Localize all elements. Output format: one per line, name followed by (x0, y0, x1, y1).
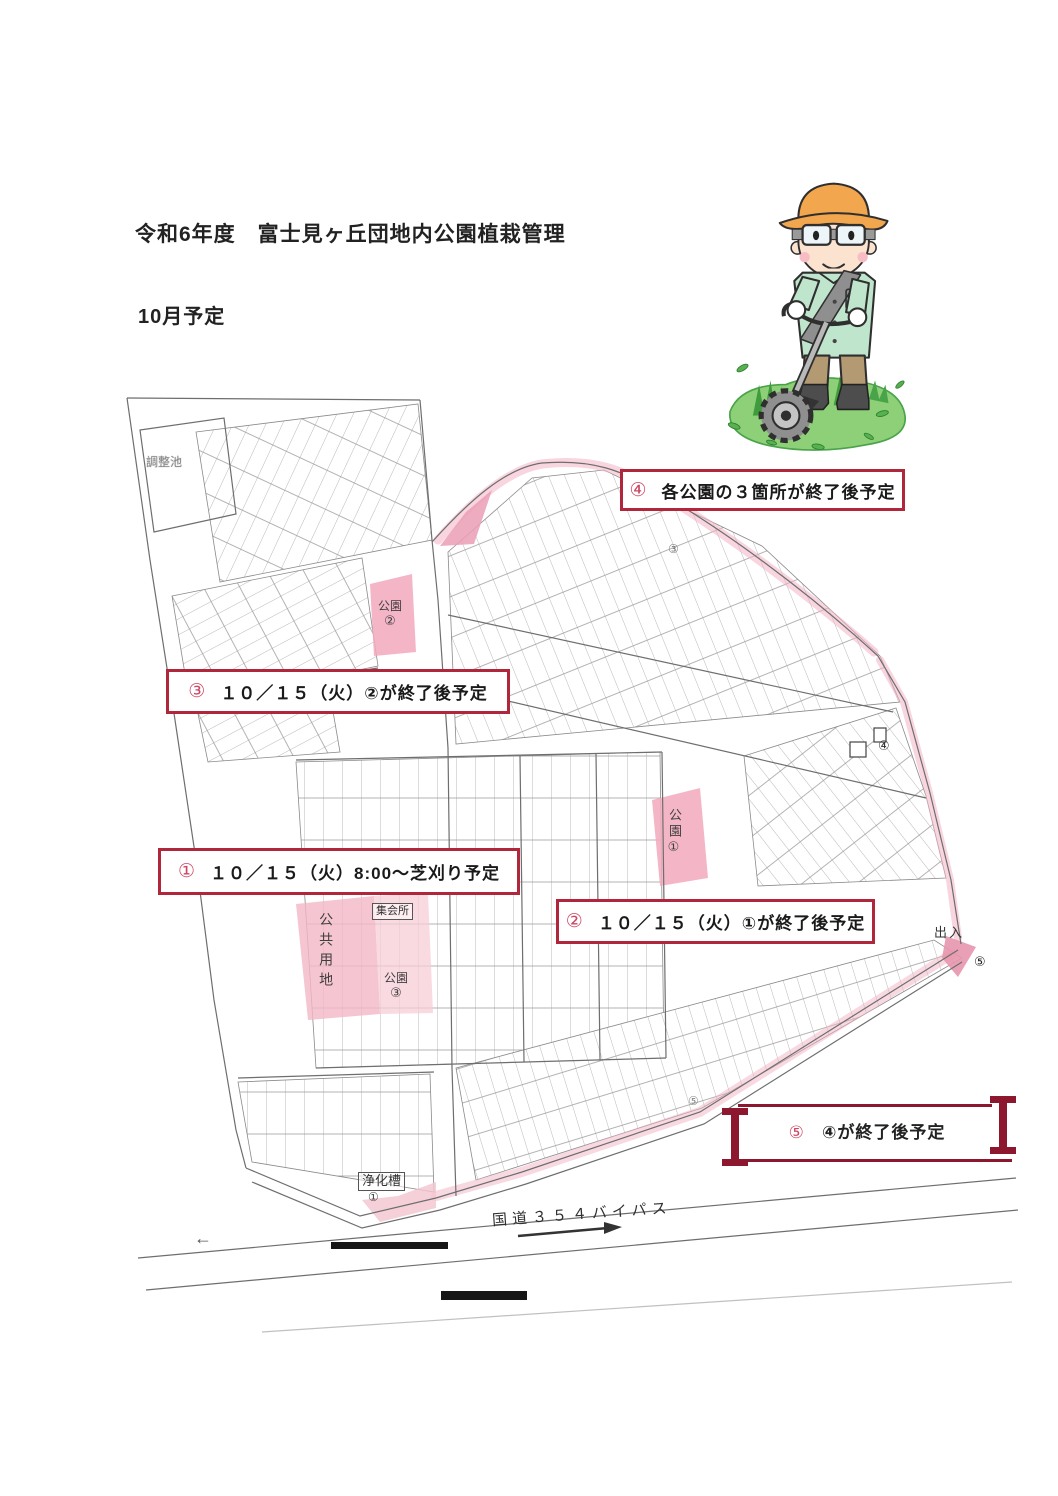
bracket-bottom-line (726, 1159, 1012, 1162)
septic-tank-number: ① (368, 1191, 405, 1205)
map-marker-4: ④ (878, 738, 890, 754)
park-1-number: ① (667, 840, 682, 858)
annotation-box-4: ④ 各公園の３箇所が終了後予定 (620, 469, 905, 511)
eye-right (848, 231, 854, 240)
annotation-1-text: １０／１５（火）8:00～芝刈り予定 (210, 859, 500, 884)
annotation-2-text: １０／１５（火）①が終了後予定 (598, 909, 865, 934)
park-2-number: ② (378, 614, 402, 629)
bracket-top-line (738, 1104, 992, 1107)
annotation-box-2: ② １０／１５（火）①が終了後予定 (556, 899, 875, 944)
annotation-5-number: ⑤ (789, 1123, 805, 1142)
map-marker-3: ③ (668, 542, 679, 556)
button (833, 339, 837, 343)
glove-right (849, 308, 867, 326)
blush-left (799, 252, 809, 262)
park-2-name: 公園 (378, 600, 402, 614)
blade-hub (781, 410, 791, 420)
annotation-box-1: ① １０／１５（火）8:00～芝刈り予定 (158, 848, 520, 895)
scale-bar (331, 1242, 448, 1249)
annotation-5: ⑤ ④が終了後予定 (718, 1118, 1016, 1143)
public-land-label: 公共用地 (318, 912, 334, 992)
park-1-label: 公園① (666, 808, 681, 858)
park-2-label: 公園 ② (378, 600, 402, 629)
park-3-number: ③ (384, 986, 408, 1001)
eye-left (813, 231, 819, 240)
septic-tank-label: 浄化槽 ① (358, 1172, 405, 1205)
west-arrow: ← (194, 1228, 212, 1249)
map-marker-5-road: ⑤ (688, 1094, 699, 1108)
scan-mark-bar (441, 1291, 527, 1300)
annotation-3-text: １０／１５（火）②が終了後予定 (220, 679, 487, 704)
annotation-4-text: 各公園の３箇所が終了後予定 (662, 478, 896, 503)
annotation-5-text: ④が終了後予定 (822, 1123, 945, 1142)
entrance-label: 出入 (934, 926, 964, 941)
meeting-hall-label: 集会所 (372, 903, 413, 920)
annotation-box-3: ③ １０／１５（火）②が終了後予定 (166, 669, 510, 714)
map-marker-5-entrance: ⑤ (974, 954, 986, 970)
boot-right (837, 385, 869, 410)
annotation-2-number: ② (566, 910, 584, 933)
button (833, 300, 837, 304)
park-3-label: 公園 ③ (384, 972, 408, 1001)
worker-illustration (710, 165, 920, 455)
pant-leg-right (840, 356, 867, 387)
pond-label: 調整池 (146, 456, 182, 470)
annotation-bracket-5: ⑤ ④が終了後予定 (718, 1092, 1016, 1170)
blush-right (857, 252, 867, 262)
glove-left (788, 301, 806, 319)
worker (780, 184, 888, 410)
annotation-1-number: ① (178, 860, 196, 883)
annotation-3-number: ③ (188, 680, 206, 703)
scanned-schedule-page: 令和6年度 富士見ヶ丘団地内公園植栽管理 10月予定 (0, 0, 1058, 1496)
park-3-name: 公園 (384, 972, 408, 986)
housing-blocks (172, 404, 962, 1192)
annotation-4-number: ④ (629, 479, 647, 502)
park-1-name: 公園 (667, 808, 682, 840)
septic-tank-name: 浄化槽 (358, 1172, 405, 1191)
